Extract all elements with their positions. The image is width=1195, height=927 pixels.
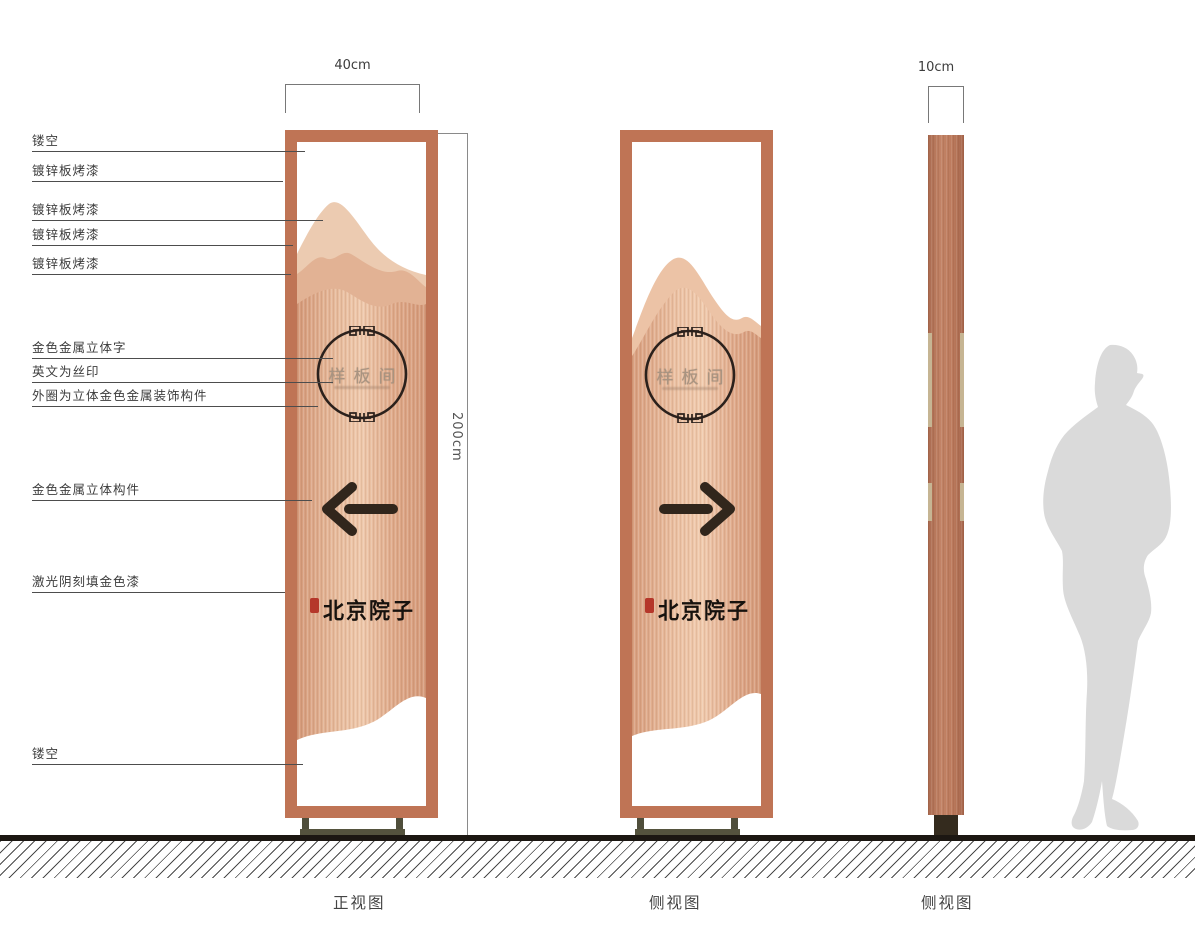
- annotation-galvanized-4: 镀锌板烤漆: [32, 257, 291, 275]
- annotation-galvanized-2: 镀锌板烤漆: [32, 203, 323, 221]
- emblem-side-protrusion: [928, 333, 932, 427]
- arrow-side-protrusion: [960, 483, 964, 521]
- annotation-galvanized-1: 镀锌板烤漆: [32, 164, 283, 182]
- dimension-tick-top: [438, 133, 467, 134]
- view-label-side-thin: 侧视图: [921, 891, 974, 913]
- annotation-label: 英文为丝印: [32, 364, 100, 379]
- annotation-label: 外圈为立体金色金属装饰构件: [32, 388, 208, 403]
- mountain-panel-graphic: [632, 142, 761, 806]
- dimension-side-width: 10cm: [908, 60, 964, 75]
- dimension-height-line: [467, 133, 468, 836]
- dimension-front-width: 40cm: [285, 58, 420, 73]
- sign-front-panel: [297, 142, 426, 806]
- emblem-side-protrusion: [960, 333, 964, 427]
- left-arrow-icon: [318, 480, 404, 538]
- view-label-front: 正视图: [333, 891, 386, 913]
- annotation-outer-ring-ornament: 外圈为立体金色金属装饰构件: [32, 389, 318, 407]
- annotation-hollow-bottom: 镂空: [32, 747, 303, 765]
- mountain-panel-graphic: [297, 142, 426, 806]
- sign-side-view-mid: [620, 130, 773, 818]
- sign-side-profile: [928, 135, 964, 815]
- red-seal-icon: [645, 598, 654, 613]
- annotation-label: 镂空: [32, 746, 59, 761]
- annotation-gold-metal-component: 金色金属立体构件: [32, 483, 312, 501]
- annotation-label: 金色金属立体字: [32, 340, 127, 355]
- annotation-gold-metal-letters: 金色金属立体字: [32, 341, 333, 359]
- logo-text: 北京院子: [658, 594, 750, 626]
- annotation-galvanized-3: 镀锌板烤漆: [32, 228, 293, 246]
- ground-line: [0, 835, 1195, 841]
- right-arrow-icon: [653, 480, 739, 538]
- annotation-label: 金色金属立体构件: [32, 482, 140, 497]
- annotation-label: 镀锌板烤漆: [32, 202, 100, 217]
- brand-logo-front: 北京院子: [310, 595, 415, 625]
- design-drawing-canvas: 镂空 镀锌板烤漆 镀锌板烤漆 镀锌板烤漆 镀锌板烤漆 金色金属立体字 英文为丝印…: [0, 0, 1195, 927]
- dimension-bracket-front: [285, 84, 420, 113]
- annotation-hollow-top: 镂空: [32, 134, 305, 152]
- emblem-english-silkscreen: [662, 387, 718, 390]
- annotation-label: 镀锌板烤漆: [32, 256, 100, 271]
- logo-text: 北京院子: [323, 594, 415, 626]
- annotation-label: 镀锌板烤漆: [32, 227, 100, 242]
- human-silhouette: [1038, 341, 1178, 838]
- annotation-label: 镀锌板烤漆: [32, 163, 100, 178]
- annotation-label: 镂空: [32, 133, 59, 148]
- annotation-laser-engraved-gold: 激光阴刻填金色漆: [32, 575, 285, 593]
- brand-logo-mid: 北京院子: [645, 595, 750, 625]
- view-label-side-mid: 侧视图: [649, 891, 702, 913]
- red-seal-icon: [310, 598, 319, 613]
- emblem-text: 样板间: [646, 363, 742, 388]
- arrow-side-protrusion: [928, 483, 932, 521]
- emblem-english-silkscreen: [334, 386, 390, 389]
- dimension-bracket-side: [928, 86, 964, 123]
- sign-mid-panel: [632, 142, 761, 806]
- annotation-label: 激光阴刻填金色漆: [32, 574, 140, 589]
- annotation-english-silkscreen: 英文为丝印: [32, 365, 333, 383]
- dimension-height: 200cm: [449, 412, 464, 462]
- sign-front-view: [285, 130, 438, 818]
- side-base-block: [934, 815, 958, 837]
- ground-hatch: [0, 841, 1195, 878]
- emblem-circle-mid: 样板间: [642, 327, 738, 423]
